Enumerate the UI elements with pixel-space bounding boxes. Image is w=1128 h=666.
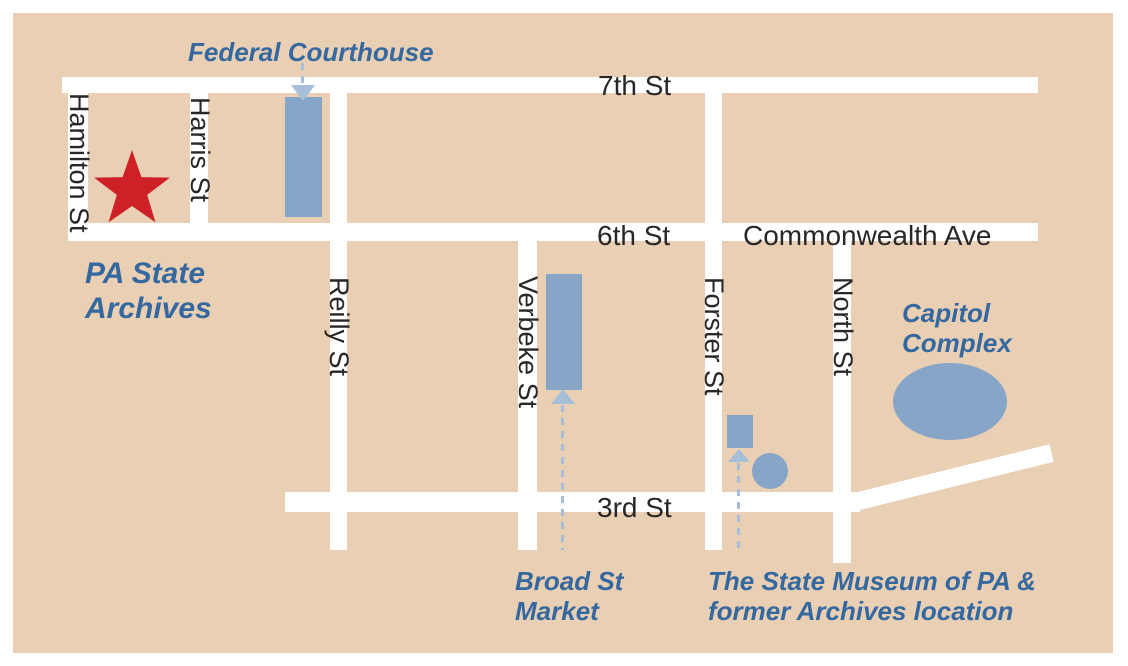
state-museum-label-line1: The State Museum of PA & (708, 566, 1036, 596)
map-page: 7th St 6th St Commonwealth Ave 3rd St Ha… (0, 0, 1128, 666)
street-label-north: North St (829, 277, 856, 376)
capitol-complex-label-line2: Complex (902, 328, 1012, 358)
state-museum-label-line2: former Archives location (708, 596, 1036, 626)
broad-st-market-arrow-line (561, 405, 564, 550)
state-museum-label: The State Museum of PA & former Archives… (708, 566, 1036, 626)
arrow-up-icon (728, 449, 750, 462)
arrow-down-icon (291, 85, 315, 101)
pa-state-archives-label-line2: Archives (85, 291, 212, 326)
red-star-icon (90, 148, 174, 232)
street-label-harris: Harris St (186, 97, 213, 202)
capitol-complex-ellipse (893, 363, 1007, 440)
pa-state-archives-label-line1: PA State (85, 256, 212, 291)
street-label-verbeke: Verbeke St (514, 276, 541, 408)
broad-st-market-label: Broad St Market (515, 566, 623, 626)
federal-courthouse-building (285, 97, 322, 217)
federal-courthouse-label: Federal Courthouse (188, 39, 434, 65)
state-museum-circle (752, 453, 788, 489)
street-label-forster: Forster St (700, 277, 727, 396)
street-label-reilly: Reilly St (325, 277, 352, 376)
broad-st-market-label-line2: Market (515, 596, 623, 626)
street-label-hamilton: Hamilton St (65, 93, 92, 233)
state-museum-arrow-line (737, 463, 740, 550)
broad-st-market-building (546, 274, 582, 390)
street-label-3rd: 3rd St (597, 494, 672, 522)
arrow-up-icon (551, 389, 575, 404)
broad-st-market-label-line1: Broad St (515, 566, 623, 596)
street-7th (62, 77, 1038, 93)
capitol-complex-label: Capitol Complex (902, 298, 1012, 358)
street-label-6th: 6th St (597, 222, 670, 250)
street-label-commonwealth-ave: Commonwealth Ave (743, 222, 992, 250)
street-3rd (285, 492, 860, 512)
state-museum-building (727, 415, 753, 448)
street-diagonal-connector (841, 444, 1054, 513)
street-label-7th: 7th St (598, 72, 671, 100)
capitol-complex-label-line1: Capitol (902, 298, 1012, 328)
pa-state-archives-label: PA State Archives (85, 256, 212, 326)
map-canvas: 7th St 6th St Commonwealth Ave 3rd St Ha… (13, 13, 1113, 653)
